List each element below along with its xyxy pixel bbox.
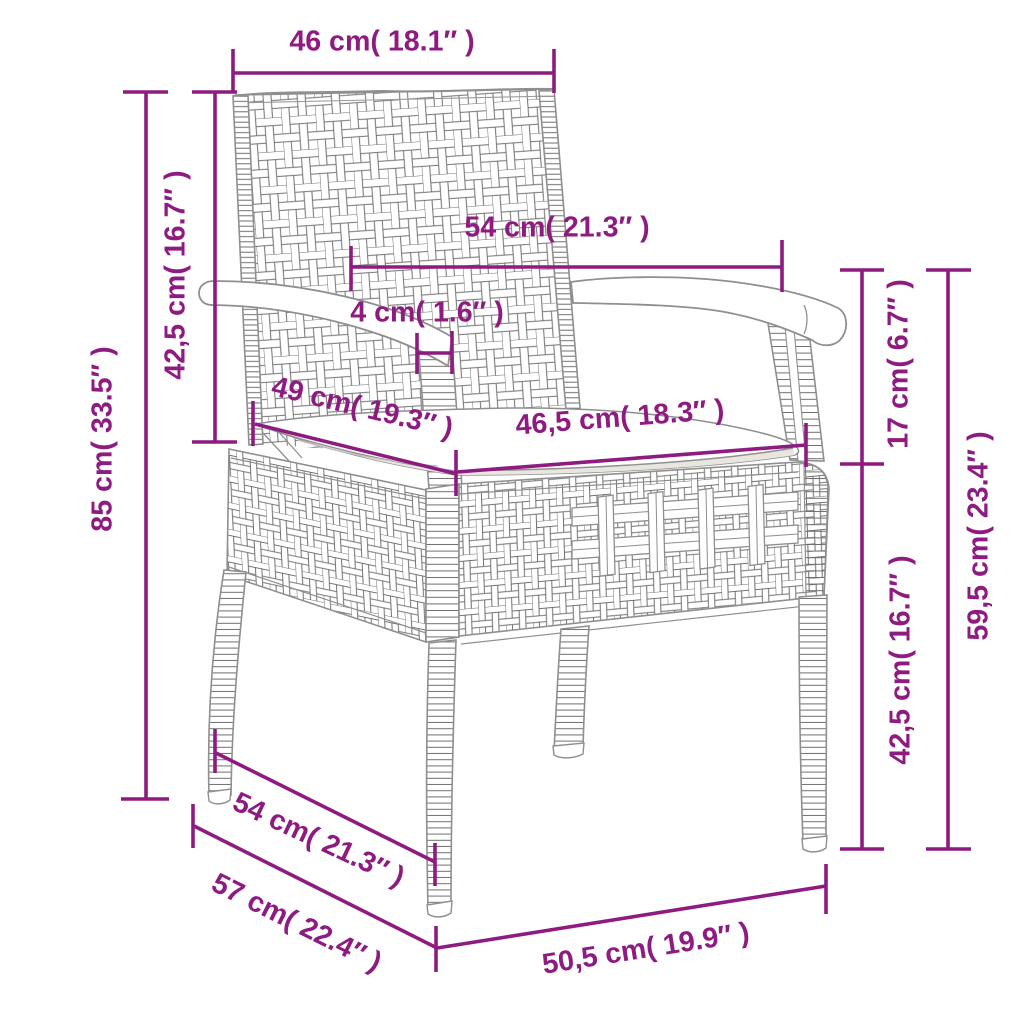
svg-text:54 cm( 21.3″ ): 54 cm( 21.3″ ) [464,212,649,244]
svg-text:46 cm( 18.1″ ): 46 cm( 18.1″ ) [289,26,474,58]
svg-text:42,5 cm( 16.7″ ): 42,5 cm( 16.7″ ) [885,555,917,764]
svg-text:85 cm( 33.5″ ): 85 cm( 33.5″ ) [87,346,119,531]
svg-text:17 cm( 6.7″ ): 17 cm( 6.7″ ) [883,279,915,448]
svg-text:4 cm( 1.6″ ): 4 cm( 1.6″ ) [350,297,504,329]
svg-text:42,5 cm( 16.7″ ): 42,5 cm( 16.7″ ) [160,170,192,379]
svg-text:59,5 cm( 23.4″ ): 59,5 cm( 23.4″ ) [963,431,995,640]
